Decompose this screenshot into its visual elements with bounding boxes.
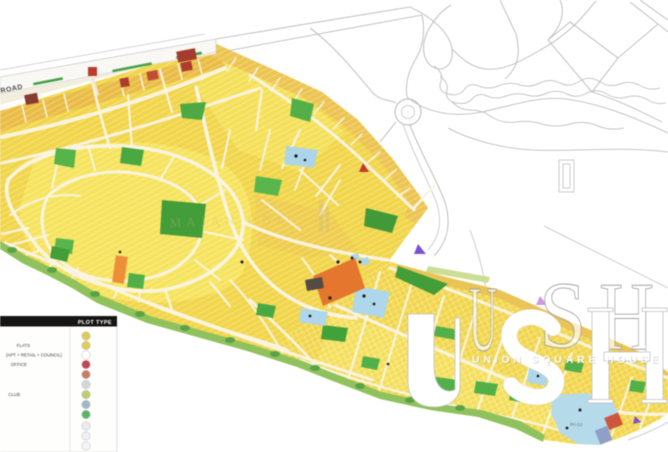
svg-text:PLOT TYPE: PLOT TYPE xyxy=(78,320,112,326)
svg-text:PA-12: PA-12 xyxy=(570,422,583,427)
svg-text:FLATS: FLATS xyxy=(17,343,30,348)
svg-text:UNION SQUARE HOUSE: UNION SQUARE HOUSE xyxy=(472,354,662,366)
svg-text:(APT + RETAIL + COUNCIL): (APT + RETAIL + COUNCIL) xyxy=(6,353,63,358)
svg-text:OFFICE: OFFICE xyxy=(11,362,27,367)
svg-text:CLUB: CLUB xyxy=(8,392,20,397)
